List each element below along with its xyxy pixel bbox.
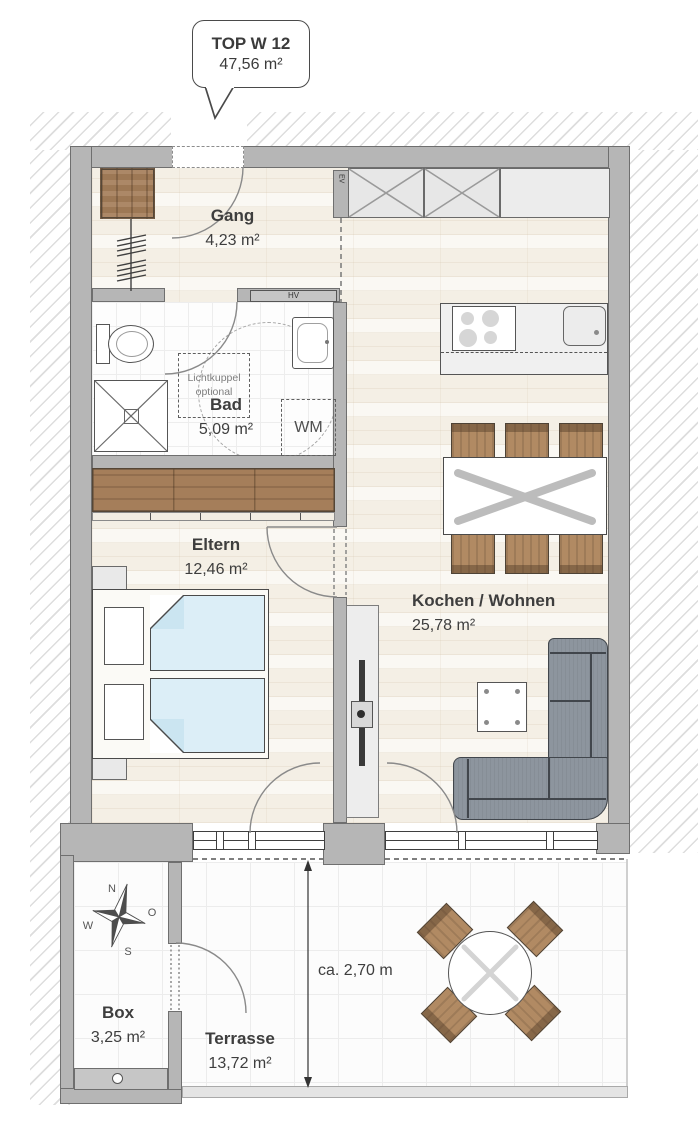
callout-pointer bbox=[190, 84, 250, 122]
window-mullion bbox=[458, 831, 466, 850]
callout-seam-mask bbox=[206, 86, 234, 88]
callout-area: 47,56 m² bbox=[219, 56, 282, 74]
wall-partition-lower bbox=[333, 597, 347, 823]
kitchen-sink-tap bbox=[594, 330, 599, 335]
washing-machine-zone: WM bbox=[281, 399, 336, 456]
floor-plan: HV EV Lichtkuppel optional WM bbox=[0, 0, 700, 1129]
meter-box: EV bbox=[333, 170, 349, 218]
hatch-right bbox=[630, 150, 698, 853]
entry-wardrobe bbox=[100, 168, 155, 219]
eltern-name: Eltern bbox=[140, 532, 292, 558]
tv-mount-dot bbox=[357, 710, 365, 718]
entrance-door-opening bbox=[172, 146, 244, 168]
dining-chair-4 bbox=[451, 530, 495, 574]
wall-gang-bad-a bbox=[92, 288, 165, 302]
bedroom-wardrobe bbox=[92, 468, 335, 512]
terrasse-name: Terrasse bbox=[165, 1026, 315, 1052]
track-tick-4 bbox=[300, 513, 301, 520]
blanket-fold-1 bbox=[150, 595, 184, 629]
eltern-area: 12,46 m² bbox=[140, 558, 292, 583]
terrace-bottom-edge bbox=[182, 1086, 628, 1098]
sofa-seam-back-v bbox=[590, 653, 592, 757]
dining-chair-6 bbox=[559, 530, 603, 574]
box-area: 3,25 m² bbox=[62, 1026, 174, 1051]
track-tick-1 bbox=[150, 513, 151, 520]
coffee-table-leg-1 bbox=[484, 689, 489, 694]
window-living bbox=[385, 831, 598, 850]
unit-callout[interactable]: TOP W 12 47,56 m² bbox=[192, 20, 310, 88]
terrace-right-edge bbox=[626, 859, 628, 1090]
gang-area: 4,23 m² bbox=[155, 229, 310, 254]
wohnen-name: Kochen / Wohnen bbox=[412, 588, 592, 614]
wardrobe-track bbox=[92, 512, 335, 521]
sofa-seam-armrest-left bbox=[467, 759, 469, 818]
room-label-bad: Bad 5,09 m² bbox=[165, 392, 287, 443]
terrace-table bbox=[448, 931, 532, 1015]
cabinet-x-1 bbox=[348, 168, 424, 218]
terrace-depth-label: ca. 2,70 m bbox=[318, 962, 393, 980]
room-label-terrasse: Terrasse 13,72 m² bbox=[165, 1026, 315, 1077]
sofa-seam-cushion-v bbox=[550, 700, 591, 702]
stove-burner-4 bbox=[484, 331, 497, 344]
toilet-bowl-inner bbox=[116, 331, 148, 357]
blanket-fold-2 bbox=[150, 719, 184, 753]
sofa-seam-back-h bbox=[469, 798, 606, 800]
stove-burner-1 bbox=[461, 312, 474, 325]
track-tick-2 bbox=[200, 513, 201, 520]
shower-drain bbox=[124, 409, 139, 424]
window-mullion bbox=[546, 831, 554, 850]
wall-bottom-left bbox=[60, 823, 193, 862]
distribution-board: HV bbox=[250, 290, 337, 302]
stove-burner-3 bbox=[459, 329, 477, 347]
room-label-eltern: Eltern 12,46 m² bbox=[140, 532, 292, 583]
ev-label: EV bbox=[338, 174, 345, 183]
wall-top bbox=[70, 146, 630, 168]
bad-name: Bad bbox=[165, 392, 287, 418]
coffee-table-leg-4 bbox=[515, 720, 520, 725]
pillow-2 bbox=[104, 684, 144, 740]
pillow-1 bbox=[104, 607, 144, 665]
wall-box-left bbox=[60, 855, 74, 1104]
window-bedroom bbox=[193, 831, 325, 850]
terrasse-area: 13,72 m² bbox=[165, 1052, 315, 1077]
hv-label: HV bbox=[251, 291, 336, 301]
wall-box-bottom bbox=[60, 1088, 182, 1104]
wall-right bbox=[608, 146, 630, 854]
sofa-seam-corner bbox=[548, 757, 550, 798]
track-tick-3 bbox=[250, 513, 251, 520]
dining-table bbox=[443, 457, 607, 535]
kitchen-counter-edge bbox=[441, 352, 607, 353]
room-label-box: Box 3,25 m² bbox=[62, 1000, 174, 1051]
cabinet-plain bbox=[500, 168, 610, 218]
stove-burner-2 bbox=[482, 310, 499, 327]
washbasin-tap bbox=[325, 340, 329, 344]
wm-label: WM bbox=[294, 419, 322, 437]
wall-box-right-upper bbox=[168, 862, 182, 944]
cabinet-x-2 bbox=[424, 168, 500, 218]
wall-bad-eltern bbox=[92, 455, 340, 469]
room-label-gang: Gang 4,23 m² bbox=[155, 203, 310, 254]
hatch-top-right bbox=[247, 112, 698, 150]
coffee-table-leg-2 bbox=[515, 689, 520, 694]
room-label-wohnen: Kochen / Wohnen 25,78 m² bbox=[412, 588, 592, 639]
hatch-top-left bbox=[30, 112, 171, 150]
wall-left bbox=[70, 146, 92, 862]
washbasin-inner bbox=[297, 323, 328, 363]
dining-chair-5 bbox=[505, 530, 549, 574]
window-mullion bbox=[248, 831, 256, 850]
wall-terrace-pier bbox=[323, 823, 385, 865]
window-mullion bbox=[216, 831, 224, 850]
coffee-table-leg-3 bbox=[484, 720, 489, 725]
gang-name: Gang bbox=[155, 203, 310, 229]
kitchen-sink bbox=[563, 306, 606, 346]
wohnen-area: 25,78 m² bbox=[412, 614, 592, 639]
sofa-horizontal bbox=[453, 757, 608, 820]
box-name: Box bbox=[62, 1000, 174, 1026]
bad-area: 5,09 m² bbox=[165, 418, 287, 443]
box-drain bbox=[112, 1073, 123, 1084]
wall-bottom-right bbox=[596, 823, 630, 854]
callout-title: TOP W 12 bbox=[212, 34, 291, 54]
sofa-seam-armrest-top bbox=[550, 652, 606, 654]
